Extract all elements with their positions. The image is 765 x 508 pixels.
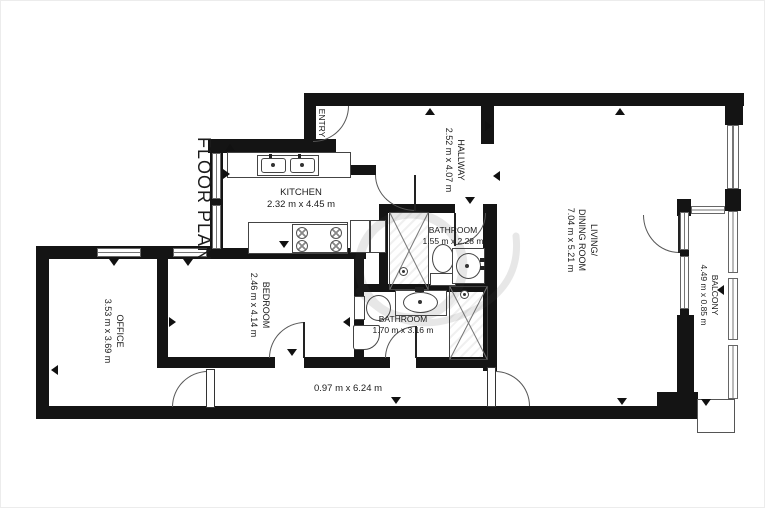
- direction-marker: [223, 169, 230, 179]
- room-label-balcony: BALCONY 4.49 m x 0.85 m: [696, 245, 720, 345]
- room-name: LIVING/: [587, 181, 599, 299]
- faucet-icon: [298, 154, 301, 158]
- room-dims: 1.55 m x 2.28 m: [405, 236, 501, 247]
- door-arc-office: [172, 371, 208, 407]
- room-label-bathroom-small: BATHROOM 1.55 m x 2.28 m: [405, 225, 501, 247]
- room-dims: 1.70 m x 3.16 m: [353, 325, 453, 336]
- burner-icon: [296, 240, 308, 252]
- room-name: BATHROOM: [353, 314, 453, 325]
- direction-marker: [493, 171, 500, 181]
- wall: [725, 93, 743, 125]
- drain-dot: [271, 163, 275, 167]
- room-name: HALLWAY: [454, 116, 466, 204]
- room-label-entry: ENTRY: [315, 97, 327, 149]
- room-label-office: OFFICE 3.53 m x 3.69 m: [101, 283, 125, 379]
- wall: [304, 93, 744, 106]
- faucet-icon: [269, 154, 272, 158]
- direction-marker: [615, 108, 625, 115]
- direction-marker: [425, 108, 435, 115]
- direction-marker: [51, 365, 58, 375]
- wall: [36, 406, 698, 419]
- room-dims: 4.49 m x 0.85 m: [698, 245, 709, 345]
- door-leaf: [303, 322, 305, 358]
- wall: [36, 246, 49, 419]
- wall: [157, 253, 168, 363]
- direction-marker: [287, 349, 297, 356]
- room-dims: 3.53 m x 3.69 m: [102, 283, 114, 379]
- wall: [354, 357, 390, 368]
- door-arc-balcony: [643, 215, 679, 253]
- wall: [657, 392, 698, 418]
- door-leaf: [487, 367, 496, 407]
- room-dims: 2.46 m x 4.14 m: [248, 257, 260, 353]
- room-name: KITCHEN: [251, 187, 351, 199]
- direction-marker: [279, 241, 289, 248]
- page-title: FLOOR PLAN: [191, 125, 215, 273]
- window: [728, 211, 738, 273]
- room-label-bathroom-large: BATHROOM 1.70 m x 3.16 m: [353, 314, 453, 336]
- wall: [677, 315, 694, 399]
- burner-icon: [296, 227, 308, 239]
- room-dims: 2.32 m x 4.45 m: [251, 199, 351, 211]
- direction-marker: [617, 398, 627, 405]
- window: [728, 278, 738, 340]
- direction-marker: [169, 317, 176, 327]
- balcony-door-glass: [680, 212, 689, 250]
- room-name: BALCONY: [709, 245, 720, 345]
- door-leaf: [678, 215, 680, 253]
- room-dims: 7.04 m x 5.21 m: [564, 181, 576, 299]
- direction-marker: [109, 259, 119, 266]
- wall: [725, 189, 741, 211]
- window: [727, 125, 739, 189]
- window: [97, 248, 141, 257]
- room-label-hallway: HALLWAY 2.52 m x 4.07 m: [440, 116, 466, 204]
- direction-marker: [391, 397, 401, 404]
- corridor-dims: 0.97 m x 6.24 m: [298, 383, 398, 395]
- room-label-living-dining: LIVING/ DINING ROOM 7.04 m x 5.21 m: [559, 181, 599, 299]
- room-name: OFFICE: [113, 283, 125, 379]
- direction-marker: [485, 121, 492, 131]
- direction-marker: [701, 399, 711, 406]
- room-label-kitchen: KITCHEN 2.32 m x 4.45 m: [251, 187, 351, 213]
- floor-plan: FLOOR PLAN ENTRY KITCHEN 2.32 m x 4.45 m…: [0, 0, 765, 508]
- wall: [680, 309, 689, 316]
- room-name: DINING ROOM: [576, 181, 588, 299]
- room-dims: 2.52 m x 4.07 m: [443, 116, 455, 204]
- room-label-bedroom: BEDROOM 2.46 m x 4.14 m: [247, 257, 271, 353]
- drain-dot: [300, 163, 304, 167]
- door-leaf: [206, 369, 215, 408]
- wall: [157, 357, 275, 368]
- window: [691, 206, 725, 214]
- direction-marker: [225, 144, 235, 151]
- balcony-door-glass: [680, 256, 689, 309]
- room-name: BEDROOM: [259, 257, 271, 353]
- room-name: BATHROOM: [405, 225, 501, 236]
- door-arc-living: [495, 371, 530, 406]
- window: [728, 345, 738, 399]
